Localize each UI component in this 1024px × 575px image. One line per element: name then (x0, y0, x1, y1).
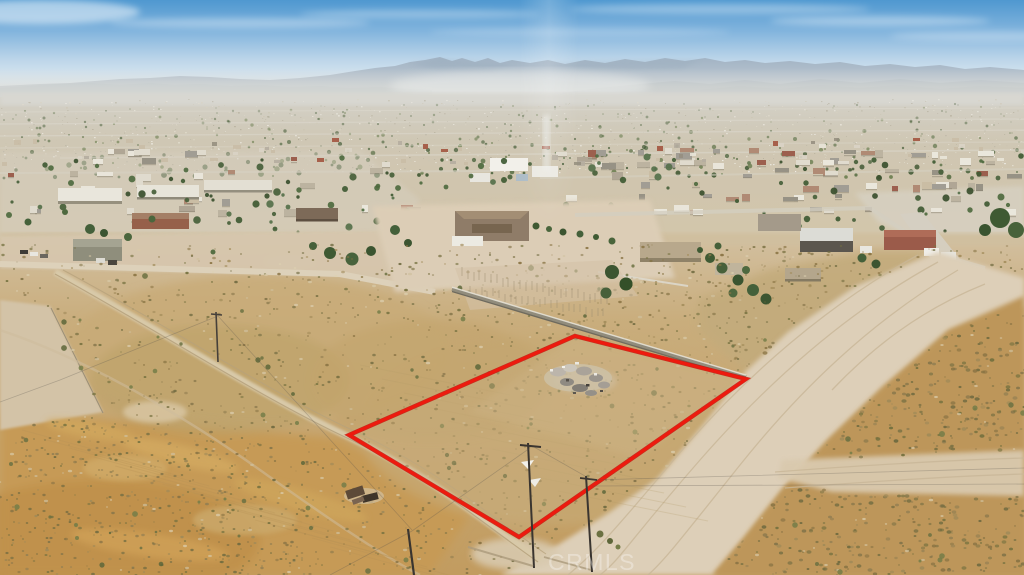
svg-text:CRMLS: CRMLS (548, 549, 636, 575)
